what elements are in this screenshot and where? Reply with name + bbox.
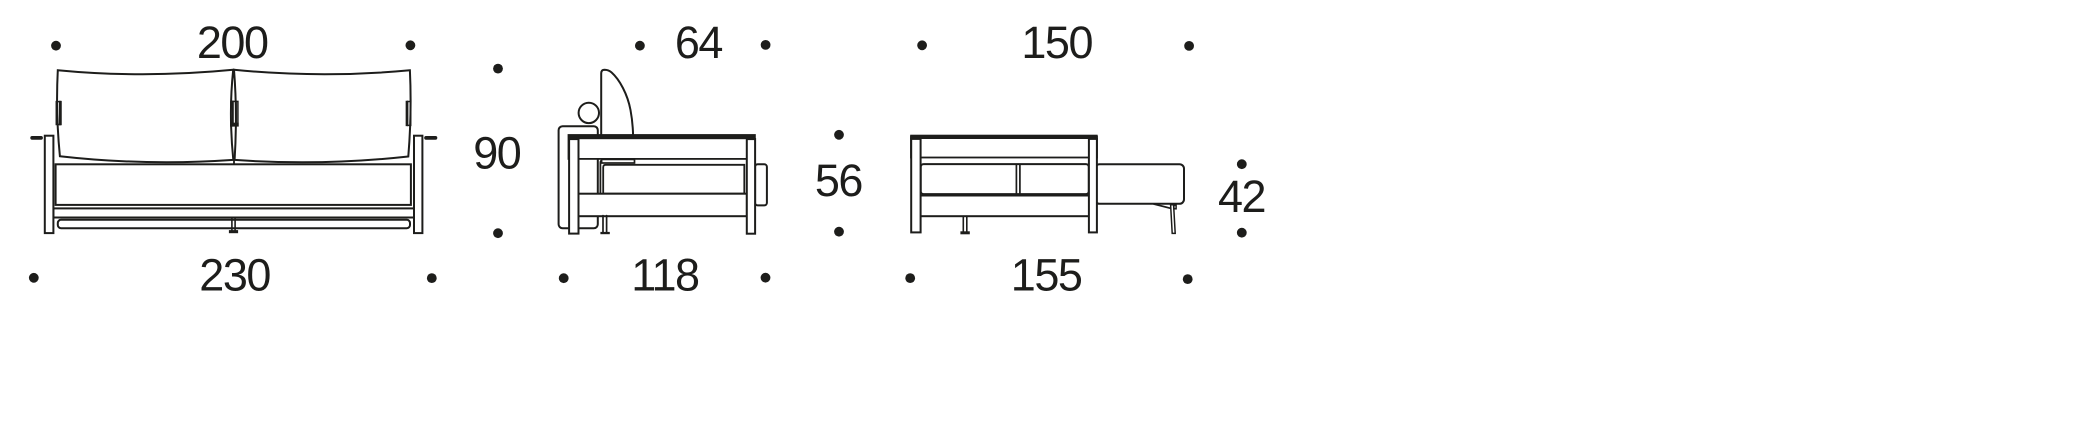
svg-text:230: 230 bbox=[199, 250, 270, 301]
svg-text:155: 155 bbox=[1011, 249, 1082, 300]
svg-text:118: 118 bbox=[631, 250, 699, 301]
svg-text:90: 90 bbox=[473, 128, 521, 179]
svg-text:56: 56 bbox=[815, 155, 863, 206]
svg-text:42: 42 bbox=[1218, 171, 1265, 222]
svg-text:200: 200 bbox=[197, 17, 268, 68]
svg-text:150: 150 bbox=[1021, 17, 1092, 68]
svg-text:64: 64 bbox=[675, 17, 723, 68]
